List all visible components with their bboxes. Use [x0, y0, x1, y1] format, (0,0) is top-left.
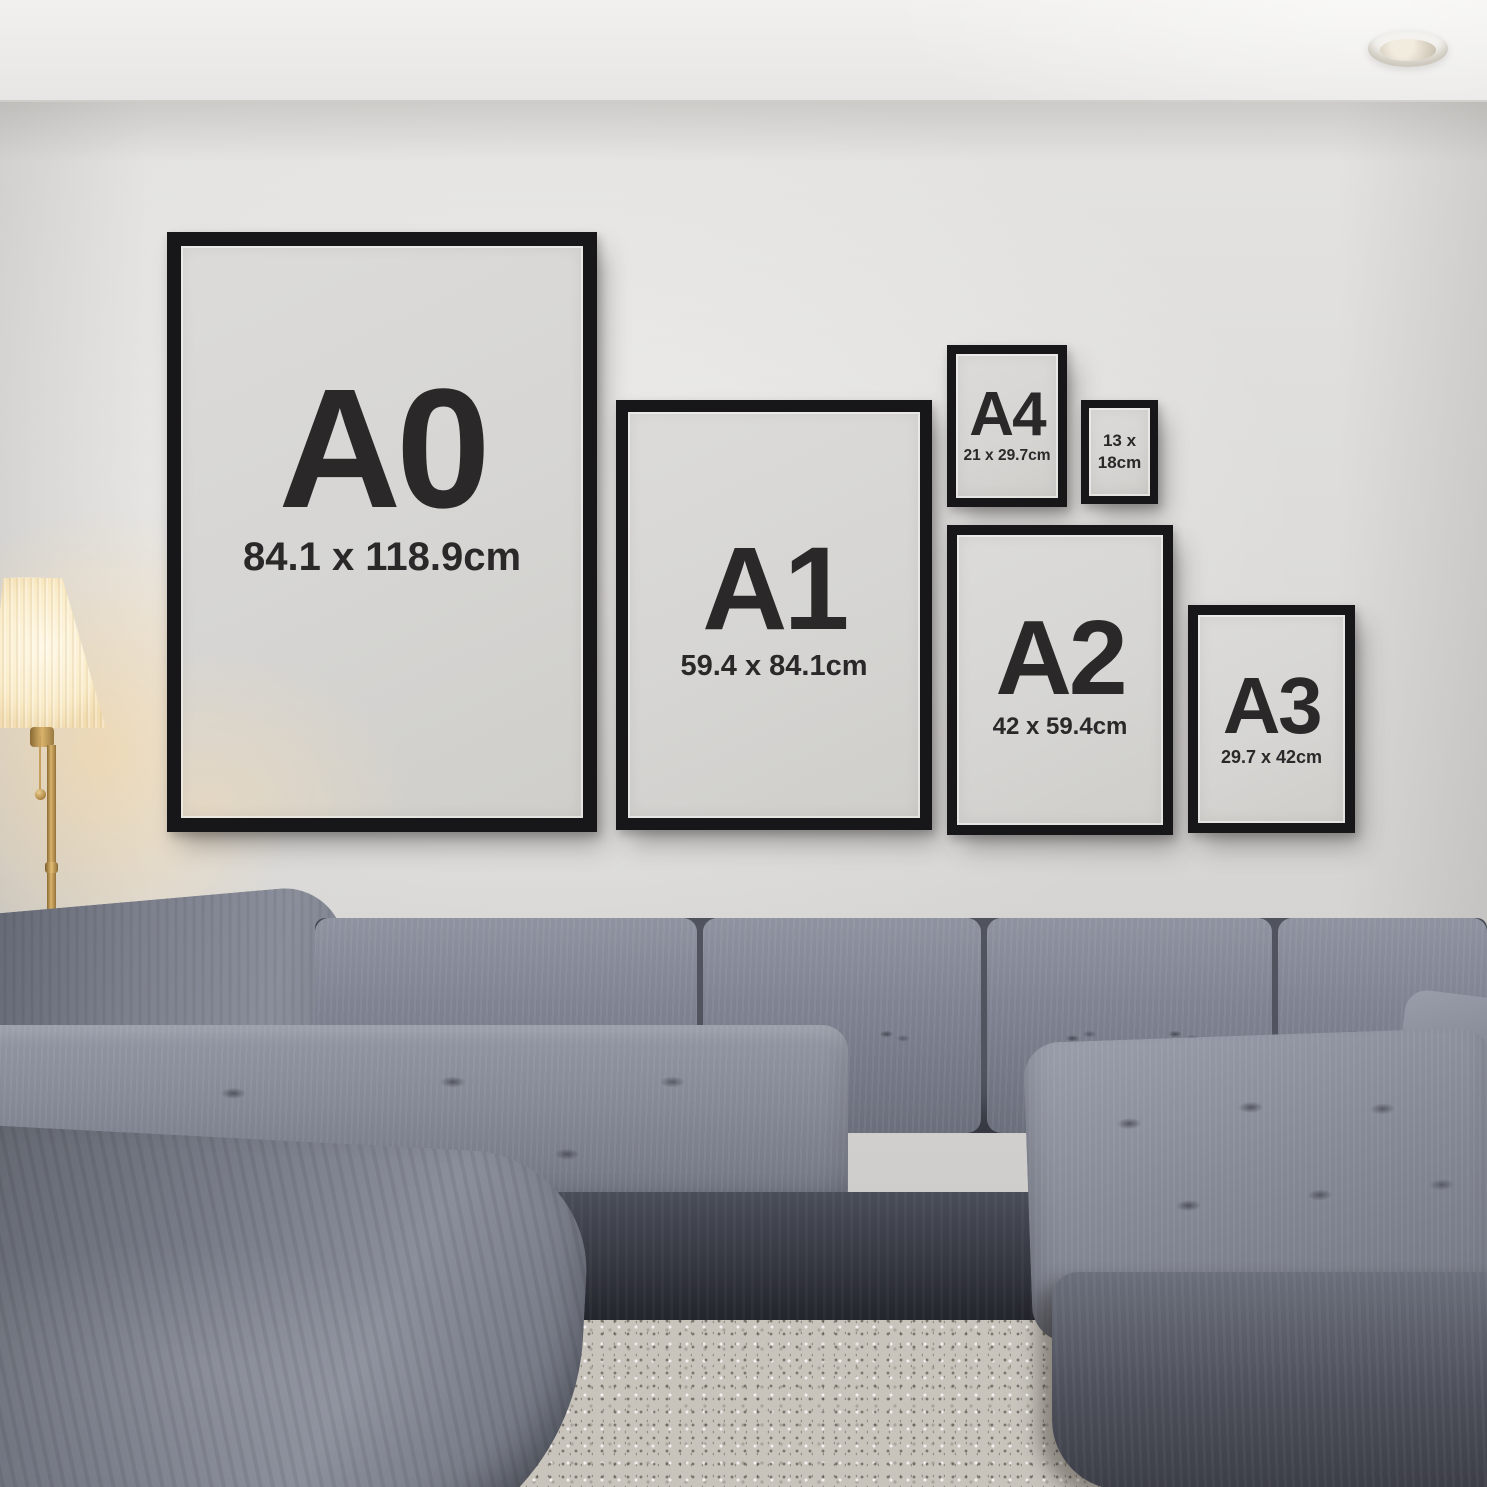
poster-a0-label: A0 — [278, 377, 485, 522]
ceiling — [0, 0, 1487, 102]
poster-a3-label: A3 — [1223, 672, 1320, 740]
frame-a3: A3 29.7 x 42cm — [1188, 605, 1355, 833]
sofa-right-chaise-base — [1052, 1272, 1487, 1487]
poster-a2-dimensions: 42 x 59.4cm — [993, 715, 1128, 739]
recessed-ceiling-light — [1368, 30, 1448, 67]
wall-ceiling-shadow — [0, 100, 1487, 162]
poster-a1-text: A1 59.4 x 84.1cm — [680, 539, 867, 680]
poster-a3-text: A3 29.7 x 42cm — [1221, 672, 1322, 766]
poster-13x18-text: 13 x 18cm — [1098, 432, 1141, 472]
poster-a0: A0 84.1 x 118.9cm — [181, 246, 583, 818]
poster-13x18-dimensions-line2: 18cm — [1098, 454, 1141, 473]
frame-a1: A1 59.4 x 84.1cm — [616, 400, 932, 830]
lamp-pull-chain — [39, 735, 41, 790]
lamp-socket — [30, 727, 54, 747]
frame-13x18: 13 x 18cm — [1081, 400, 1158, 504]
poster-a0-dimensions: 84.1 x 118.9cm — [243, 537, 521, 577]
poster-a3-dimensions: 29.7 x 42cm — [1221, 748, 1322, 766]
lamp-pole-ring — [45, 862, 58, 873]
sofa-left-chaise — [0, 1124, 593, 1487]
poster-a2-text: A2 42 x 59.4cm — [993, 613, 1128, 739]
poster-13x18-dimensions-line1: 13 x — [1103, 432, 1136, 451]
poster-a0-text: A0 84.1 x 118.9cm — [243, 377, 521, 578]
frame-a4: A4 21 x 29.7cm — [947, 345, 1067, 507]
poster-a4-dimensions: 21 x 29.7cm — [963, 448, 1050, 464]
sofa-front-base-panel — [553, 1192, 1073, 1320]
poster-a4: A4 21 x 29.7cm — [956, 354, 1058, 498]
poster-a2: A2 42 x 59.4cm — [957, 535, 1163, 825]
lamp-pull-chain-ball — [35, 789, 46, 800]
poster-a1: A1 59.4 x 84.1cm — [628, 412, 920, 818]
frame-a2: A2 42 x 59.4cm — [947, 525, 1173, 835]
poster-a1-label: A1 — [702, 539, 846, 639]
ceiling-light-bulb — [1380, 39, 1436, 61]
poster-13x18: 13 x 18cm — [1089, 408, 1150, 496]
frame-a0: A0 84.1 x 118.9cm — [167, 232, 597, 832]
poster-a4-text: A4 21 x 29.7cm — [963, 389, 1050, 463]
poster-a4-label: A4 — [969, 389, 1045, 442]
poster-a1-dimensions: 59.4 x 84.1cm — [680, 652, 867, 681]
poster-a3: A3 29.7 x 42cm — [1198, 615, 1345, 823]
living-room-scene: A0 84.1 x 118.9cm A1 59.4 x 84.1cm A4 21… — [0, 0, 1487, 1487]
poster-a2-label: A2 — [995, 613, 1124, 703]
